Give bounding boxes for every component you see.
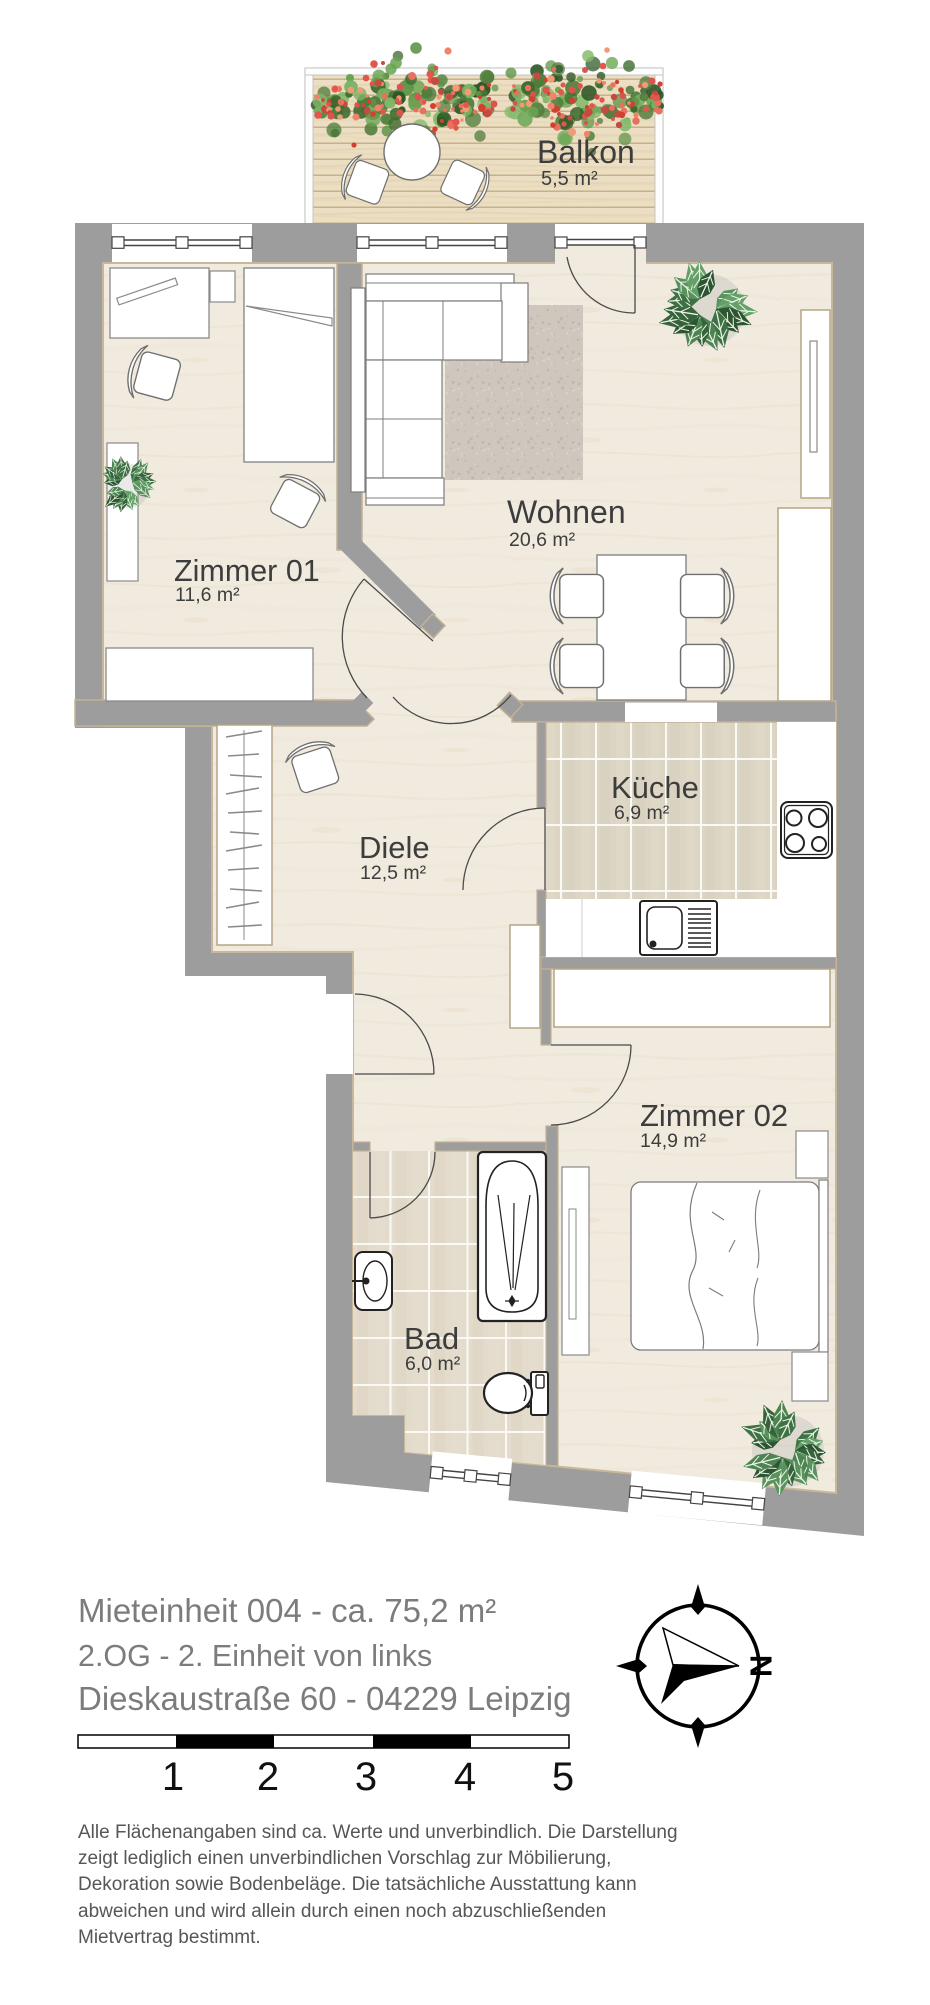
svg-text:Mietvertrag bestimmt.: Mietvertrag bestimmt. (78, 1927, 261, 1948)
svg-text:2: 2 (257, 1755, 279, 1799)
svg-text:5: 5 (552, 1755, 574, 1799)
svg-text:20,6 m²: 20,6 m² (509, 529, 576, 551)
svg-text:Balkon: Balkon (537, 134, 635, 170)
svg-text:Zimmer 01: Zimmer 01 (174, 554, 320, 588)
svg-text:Zimmer 02: Zimmer 02 (640, 1098, 788, 1133)
svg-text:zeigt lediglich einen unverbin: zeigt lediglich einen unverbindlichen Vo… (78, 1848, 611, 1869)
svg-text:abweichen und wird allein durc: abweichen und wird allein durch einen no… (78, 1901, 606, 1922)
svg-text:Küche: Küche (611, 770, 699, 805)
svg-text:Bad: Bad (404, 1321, 459, 1356)
svg-text:Diele: Diele (359, 830, 430, 865)
svg-text:6,0 m²: 6,0 m² (405, 1353, 461, 1375)
svg-text:Dieskaustraße 60 - 04229 Leipz: Dieskaustraße 60 - 04229 Leipzig (78, 1680, 571, 1717)
svg-text:Alle Flächenangaben sind ca. W: Alle Flächenangaben sind ca. Werte und u… (78, 1822, 678, 1843)
svg-text:11,6 m²: 11,6 m² (175, 584, 240, 606)
svg-text:4: 4 (454, 1755, 476, 1799)
svg-text:3: 3 (355, 1755, 377, 1799)
svg-text:6,9 m²: 6,9 m² (614, 802, 670, 824)
svg-text:Dekoration sowie Bodenbeläge.: Dekoration sowie Bodenbeläge. Die tatsäc… (78, 1874, 637, 1895)
svg-text:14,9 m²: 14,9 m² (640, 1130, 707, 1152)
svg-text:1: 1 (162, 1755, 184, 1799)
svg-text:N: N (744, 1655, 779, 1677)
svg-text:2.OG - 2. Einheit von links: 2.OG - 2. Einheit von links (78, 1639, 432, 1673)
svg-text:12,5 m²: 12,5 m² (360, 862, 427, 884)
svg-text:Wohnen: Wohnen (507, 494, 626, 530)
svg-text:5,5 m²: 5,5 m² (541, 168, 598, 190)
svg-text:Mieteinheit 004 - ca. 75,2 m²: Mieteinheit 004 - ca. 75,2 m² (78, 1592, 496, 1629)
